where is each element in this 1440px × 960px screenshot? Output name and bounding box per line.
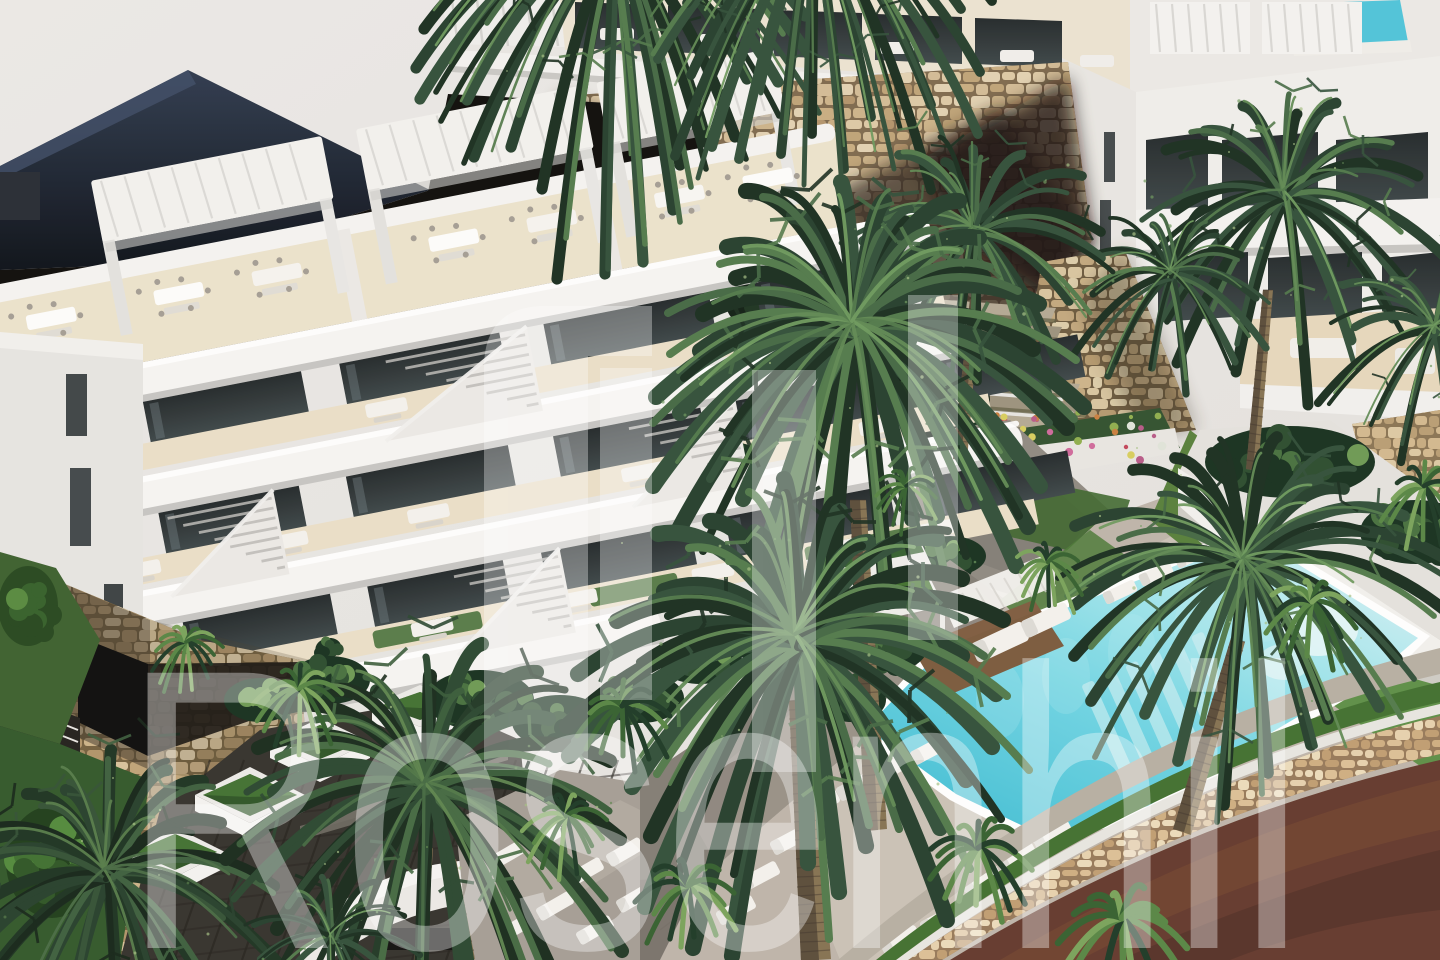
svg-text:Rosenhil: Rosenhil [123,587,1306,960]
